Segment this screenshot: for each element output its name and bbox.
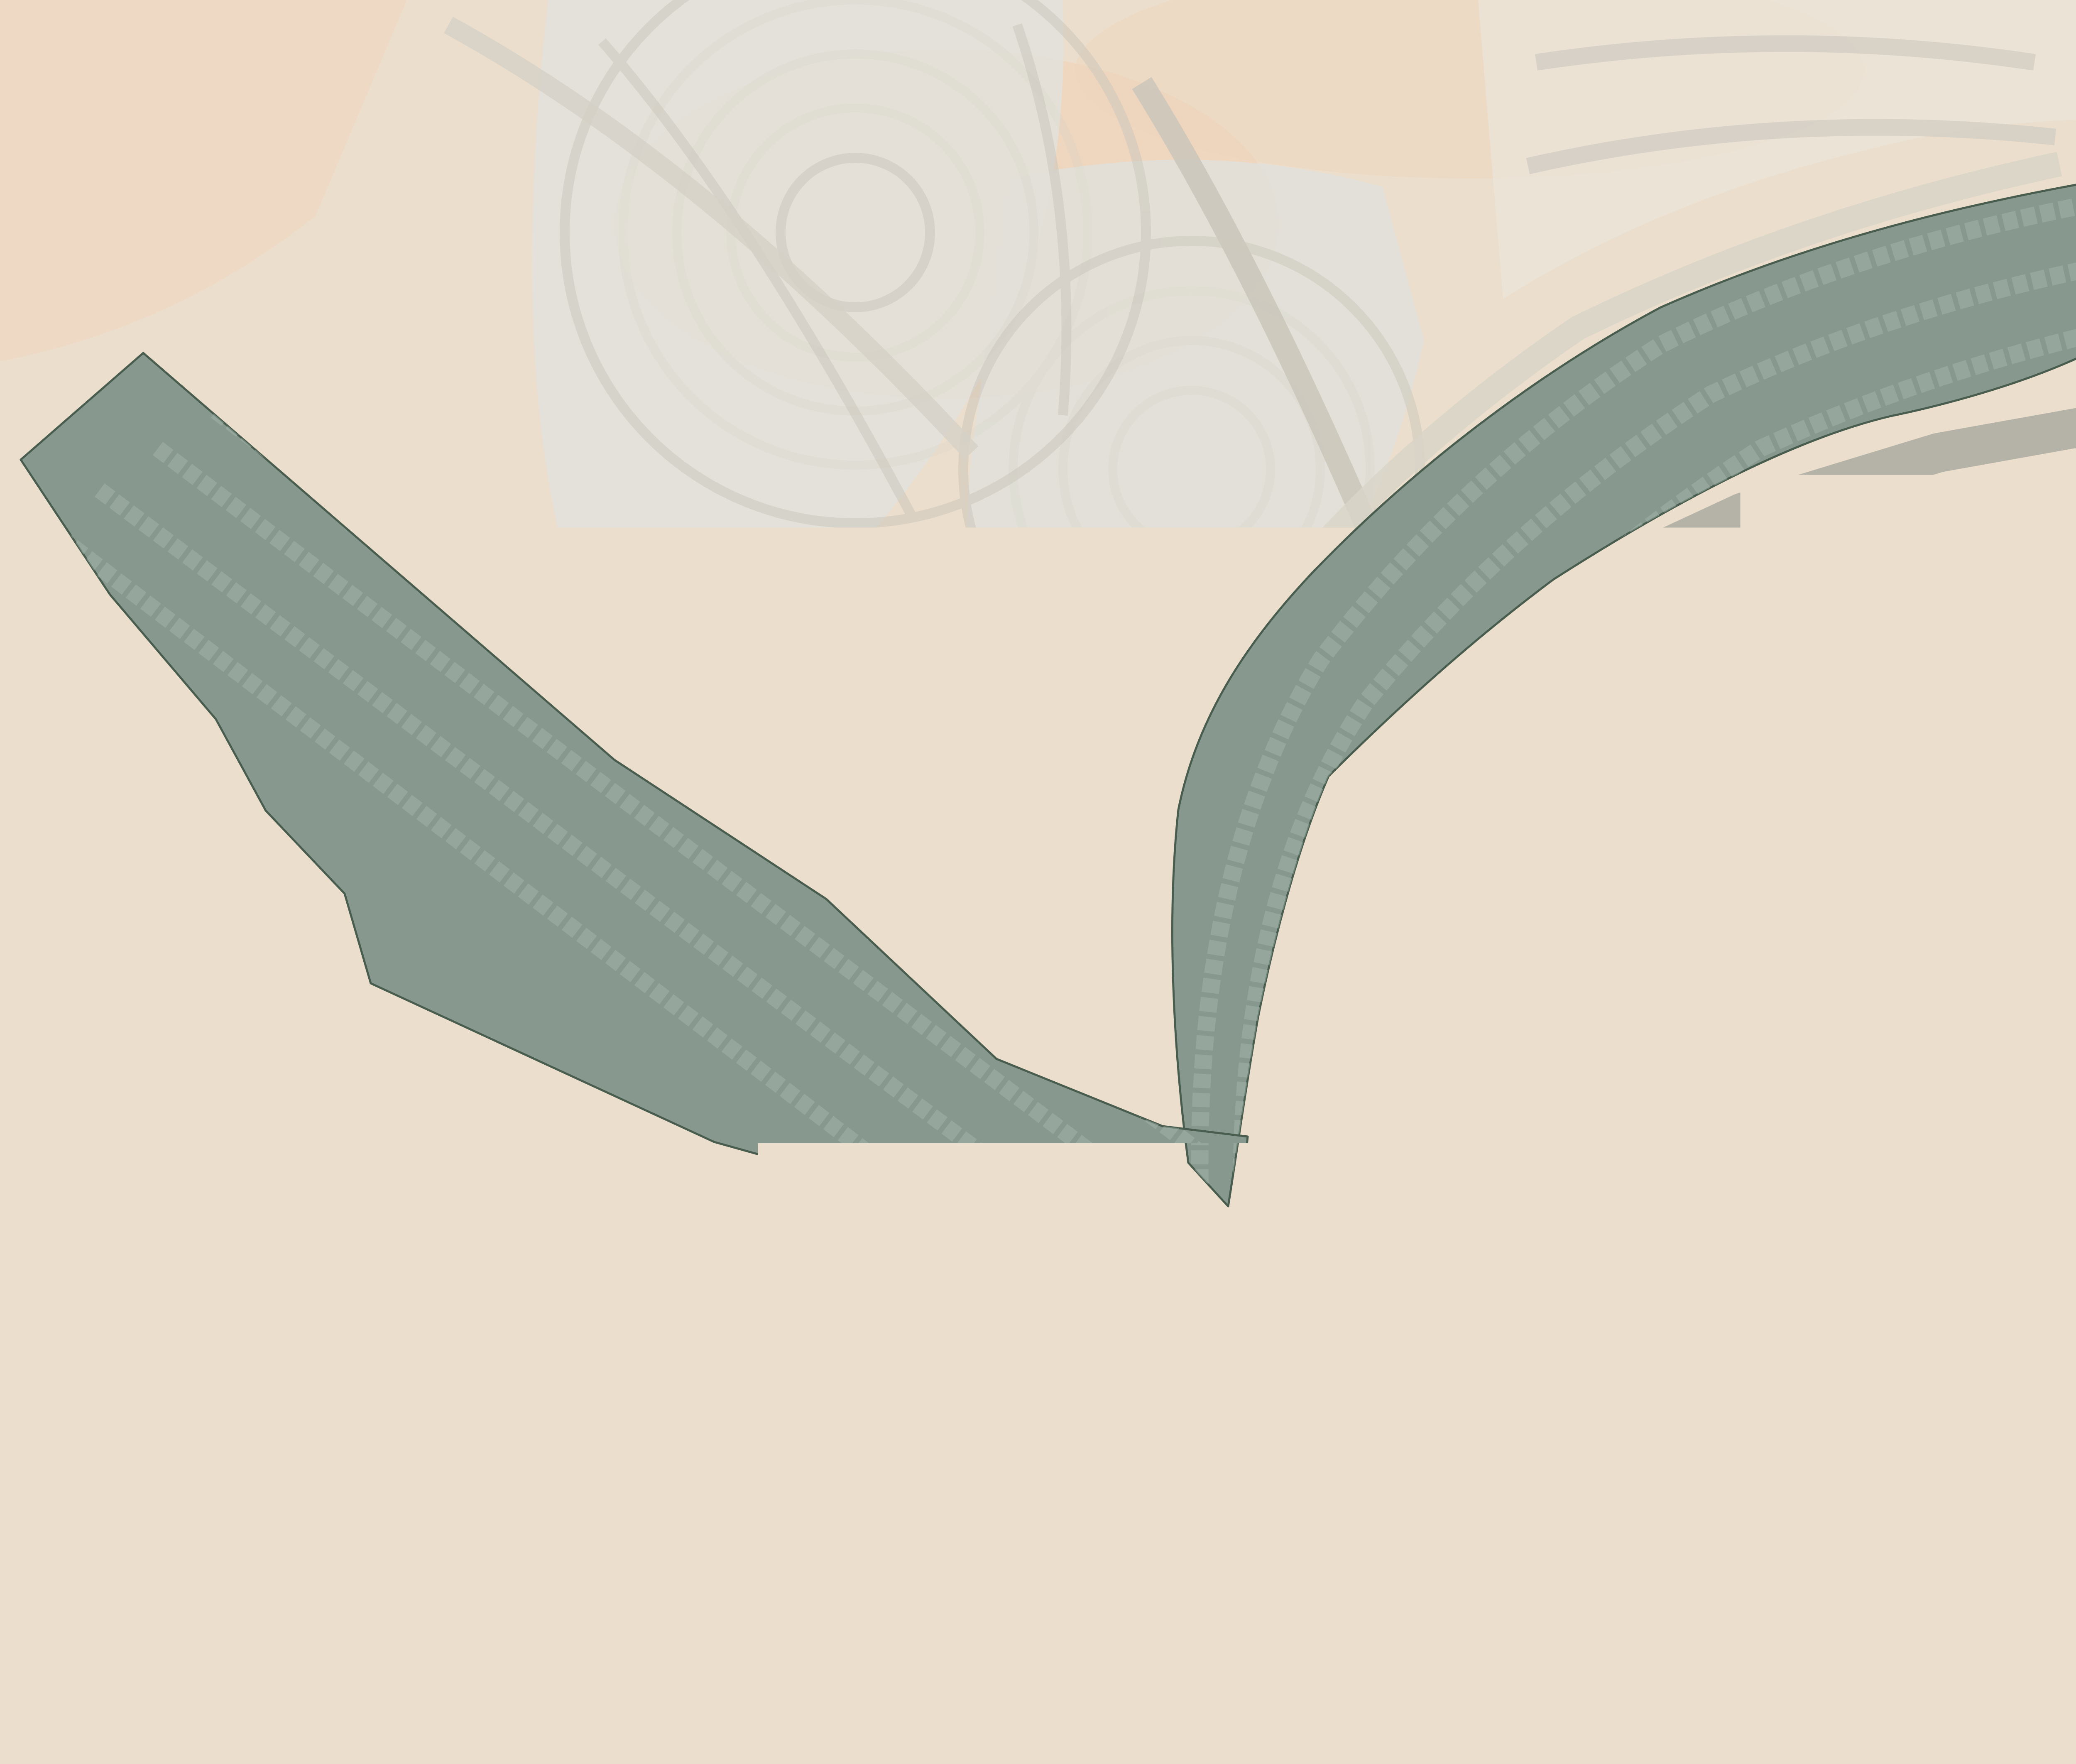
svg-text:7: 7 [1397, 1184, 1410, 1211]
svg-text:7: 7 [1563, 773, 1576, 800]
svg-text:7: 7 [1878, 960, 1892, 987]
svg-text:CASSIA VILLA CLUSTERS: CASSIA VILLA CLUSTERS [1572, 301, 2048, 338]
svg-text:8: 8 [1689, 1365, 1703, 1392]
svg-text:4: 4 [911, 1230, 924, 1257]
svg-text:8: 8 [911, 1342, 924, 1369]
svg-text:8: 8 [139, 636, 152, 663]
svg-text:CASSIA VILLA CLUSTERS: CASSIA VILLA CLUSTERS [1225, 1378, 1701, 1415]
svg-text:9: 9 [2000, 188, 2013, 215]
svg-text:8: 8 [1802, 350, 1816, 377]
svg-text:6: 6 [292, 607, 306, 634]
svg-text:5: 5 [1546, 1039, 1559, 1066]
svg-text:9: 9 [1740, 1493, 1753, 1520]
svg-text:SHAIKH MOHAMED BIN ZAYED ROAD: SHAIKH MOHAMED BIN ZAYED ROAD [933, 1600, 1678, 1640]
svg-text:CASSIA VILLA CLUSTERS: CASSIA VILLA CLUSTERS [333, 914, 809, 951]
svg-text:9: 9 [654, 756, 667, 783]
svg-text:CENTRAL PARK CLUSTER: CENTRAL PARK CLUSTER [1476, 835, 1948, 872]
svg-text:5: 5 [1903, 698, 1917, 725]
svg-text:2: 2 [363, 970, 376, 997]
svg-text:8: 8 [641, 885, 654, 912]
svg-text:4: 4 [1739, 507, 1753, 534]
svg-text:9: 9 [27, 466, 40, 493]
svg-text:6: 6 [580, 973, 593, 1000]
svg-text:RAVENNA RESIDENCES: RAVENNA RESIDENCES [1498, 882, 1926, 919]
svg-text:9: 9 [701, 1377, 715, 1404]
svg-text:Masterplan: Masterplan [158, 154, 617, 247]
svg-text:6: 6 [1148, 1209, 1161, 1236]
svg-text:4: 4 [1737, 1259, 1750, 1286]
